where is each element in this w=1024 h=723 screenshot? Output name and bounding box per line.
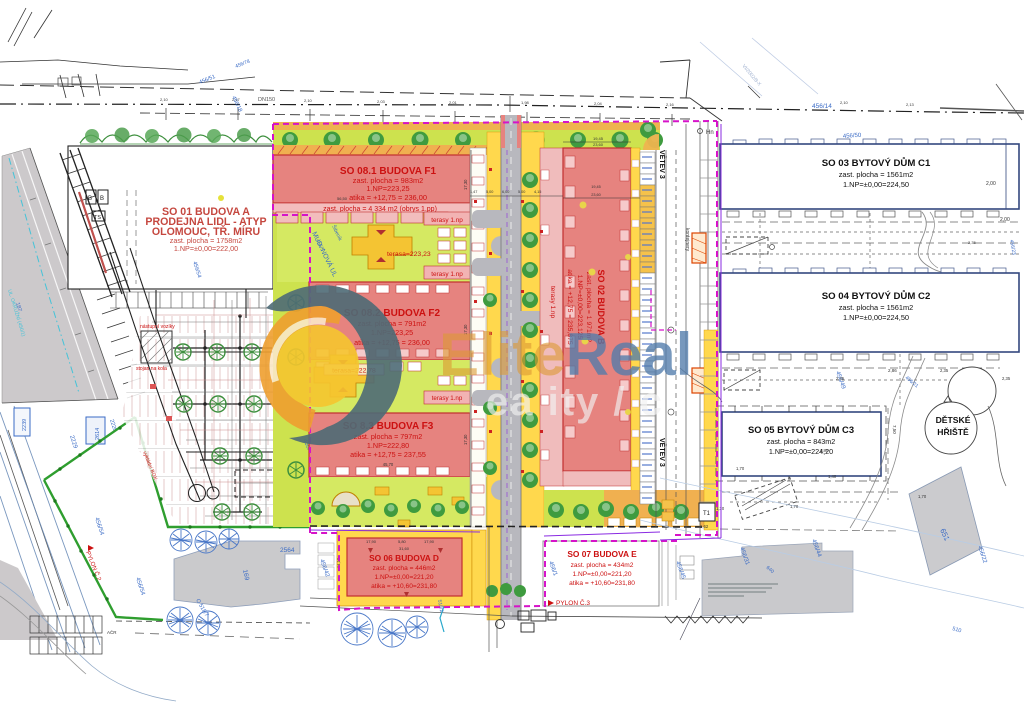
svg-text:2,35: 2,35 xyxy=(968,240,977,245)
svg-text:1,70: 1,70 xyxy=(736,466,745,471)
svg-text:1.NP=±0,00=224,50: 1.NP=±0,00=224,50 xyxy=(843,313,909,322)
svg-text:terasy 1.np: terasy 1.np xyxy=(431,217,463,224)
svg-text:T1: T1 xyxy=(703,511,711,517)
svg-text:2564: 2564 xyxy=(280,547,295,554)
svg-text:2,16: 2,16 xyxy=(666,102,675,107)
svg-text:DN150: DN150 xyxy=(258,97,275,103)
svg-text:Hn: Hn xyxy=(706,130,714,136)
svg-text:1,47: 1,47 xyxy=(470,190,477,194)
svg-text:7,50: 7,50 xyxy=(892,425,897,434)
svg-text:23,60: 23,60 xyxy=(593,142,604,147)
svg-text:1.NP=±0,00=221,20: 1.NP=±0,00=221,20 xyxy=(573,571,632,578)
svg-text:B: B xyxy=(100,196,104,202)
svg-text:56,50: 56,50 xyxy=(337,196,348,201)
svg-text:kontejnery: kontejnery xyxy=(684,228,690,252)
svg-text:1,70: 1,70 xyxy=(918,494,927,499)
svg-text:PYLON Č.3: PYLON Č.3 xyxy=(556,598,590,607)
svg-text:SO 04 BYTOVÝ DŮM C2: SO 04 BYTOVÝ DŮM C2 xyxy=(822,290,931,302)
svg-text:2,35: 2,35 xyxy=(1002,376,1011,381)
svg-text:atika = +12,75 = 236,00: atika = +12,75 = 236,00 xyxy=(349,193,427,202)
svg-text:17,90: 17,90 xyxy=(424,539,435,544)
svg-text:1.NP=±0,00=222,00: 1.NP=±0,00=222,00 xyxy=(174,244,238,253)
svg-text:nástupní vozíky: nástupní vozíky xyxy=(140,324,175,330)
svg-text:19,45: 19,45 xyxy=(591,185,601,189)
svg-text:SO 06 BUDOVA D: SO 06 BUDOVA D xyxy=(369,553,439,563)
svg-text:2614: 2614 xyxy=(95,428,101,440)
svg-text:2,86: 2,86 xyxy=(888,368,897,373)
svg-text:2,13: 2,13 xyxy=(906,102,915,107)
svg-text:456/14: 456/14 xyxy=(812,103,832,110)
svg-text:atika = +12,75 = 237,55: atika = +12,75 = 237,55 xyxy=(350,450,426,459)
svg-text:2,10: 2,10 xyxy=(840,100,849,105)
svg-text:atika = +10,60=231,80: atika = +10,60=231,80 xyxy=(371,583,437,590)
svg-text:2,00: 2,00 xyxy=(1000,217,1010,223)
svg-text:2,04: 2,04 xyxy=(594,101,603,106)
svg-text:17,30: 17,30 xyxy=(463,179,468,190)
svg-text:1,98: 1,98 xyxy=(521,100,530,105)
svg-text:1.NP=±0,00=224,50: 1.NP=±0,00=224,50 xyxy=(843,180,909,189)
svg-text:2239: 2239 xyxy=(22,419,28,431)
svg-text:1.NP=±0,00=221,20: 1.NP=±0,00=221,20 xyxy=(375,574,434,581)
svg-text:EliteReal: EliteReal xyxy=(439,321,692,388)
svg-text:5,80: 5,80 xyxy=(398,539,407,544)
svg-text:terasy 1.np: terasy 1.np xyxy=(432,395,463,402)
svg-text:5,00: 5,00 xyxy=(518,190,525,194)
svg-text:1,62: 1,62 xyxy=(700,524,709,529)
svg-text:zast. plocha = 797m2: zast. plocha = 797m2 xyxy=(354,432,423,441)
svg-text:1.NP=223,25: 1.NP=223,25 xyxy=(366,184,409,193)
svg-text:1,70: 1,70 xyxy=(790,504,799,509)
svg-text:zast. plocha = 434m2: zast. plocha = 434m2 xyxy=(571,562,634,569)
svg-text:31,60: 31,60 xyxy=(399,546,410,551)
svg-text:2,35: 2,35 xyxy=(940,368,949,373)
svg-text:1.NP=222,80: 1.NP=222,80 xyxy=(367,441,409,450)
svg-text:19,45: 19,45 xyxy=(593,136,604,141)
svg-text:1,80: 1,80 xyxy=(820,448,829,453)
svg-text:AČR: AČR xyxy=(107,629,117,635)
svg-text:2,10: 2,10 xyxy=(304,98,313,103)
svg-text:atika = +10,60=231,80: atika = +10,60=231,80 xyxy=(569,580,635,587)
svg-text:4,15: 4,15 xyxy=(534,190,541,194)
svg-text:terasa=223,23: terasa=223,23 xyxy=(387,251,431,258)
svg-text:zast. plocha = 843m2: zast. plocha = 843m2 xyxy=(767,437,836,446)
svg-text:SO 07 BUDOVA E: SO 07 BUDOVA E xyxy=(567,549,637,559)
svg-text:DĚTSKÉ: DĚTSKÉ xyxy=(936,414,971,425)
svg-text:ea ity / c: ea ity / c xyxy=(486,380,664,424)
svg-text:45,70: 45,70 xyxy=(383,462,394,467)
svg-text:2,01: 2,01 xyxy=(449,100,458,105)
svg-text:terasy 1.np: terasy 1.np xyxy=(549,286,556,319)
svg-text:terasy 1.np: terasy 1.np xyxy=(431,271,463,278)
svg-text:2,03: 2,03 xyxy=(377,99,386,104)
svg-text:HŘIŠTĚ: HŘIŠTĚ xyxy=(937,426,969,437)
svg-text:17,30: 17,30 xyxy=(463,434,468,445)
svg-text:6,00: 6,00 xyxy=(502,190,509,194)
svg-text:2,10: 2,10 xyxy=(160,97,169,102)
svg-text:zast. plocha = 1561m2: zast. plocha = 1561m2 xyxy=(839,170,914,179)
svg-text:2,35: 2,35 xyxy=(836,376,845,381)
svg-text:SO 05 BYTOVÝ DŮM C3: SO 05 BYTOVÝ DŮM C3 xyxy=(748,424,854,435)
svg-text:1,40: 1,40 xyxy=(828,474,837,479)
svg-text:SO 03 BYTOVÝ DŮM C1: SO 03 BYTOVÝ DŮM C1 xyxy=(822,157,931,169)
svg-text:stojan na kola: stojan na kola xyxy=(136,366,167,372)
svg-text:2,00: 2,00 xyxy=(986,181,996,187)
svg-text:zast. plocha = 1561m2: zast. plocha = 1561m2 xyxy=(839,303,914,312)
svg-text:17,90: 17,90 xyxy=(366,539,377,544)
svg-text:23,60: 23,60 xyxy=(591,193,601,197)
svg-text:5,00: 5,00 xyxy=(486,190,493,194)
svg-text:zast. plocha = 446m2: zast. plocha = 446m2 xyxy=(373,565,436,572)
